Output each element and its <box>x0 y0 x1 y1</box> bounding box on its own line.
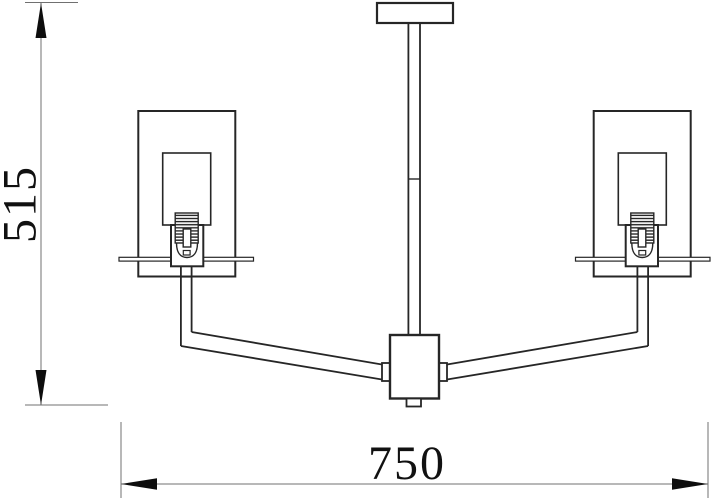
chandelier-elevation-drawing: 515 750 <box>0 0 712 500</box>
right-arm-top-line <box>447 332 637 365</box>
height-dimension-label: 515 <box>0 165 47 243</box>
central-stem <box>377 3 453 335</box>
width-dimension-label: 750 <box>368 437 446 490</box>
left-socket-pin <box>183 229 191 247</box>
arrowhead-down-icon <box>36 370 47 405</box>
left-lamp-assembly <box>119 111 382 380</box>
technical-drawing-canvas: 515 750 <box>0 0 712 500</box>
arrowhead-left-icon <box>121 478 157 489</box>
right-socket-contact <box>639 251 646 256</box>
arrowhead-right-icon <box>672 478 708 489</box>
central-junction <box>382 335 447 407</box>
arrowhead-up-icon <box>36 3 47 38</box>
left-arm-top-line <box>192 332 382 365</box>
left-arm-connector-tab <box>382 363 390 381</box>
left-socket-contact <box>183 251 190 256</box>
right-lamp-assembly <box>447 111 710 380</box>
ceiling-canopy <box>377 3 453 23</box>
bottom-finial <box>407 399 422 407</box>
junction-box <box>390 335 439 399</box>
right-socket-pin <box>638 229 646 247</box>
left-arm-bottom-line <box>181 346 382 380</box>
right-arm-bottom-line <box>447 346 648 380</box>
right-arm-connector-tab <box>439 363 447 381</box>
